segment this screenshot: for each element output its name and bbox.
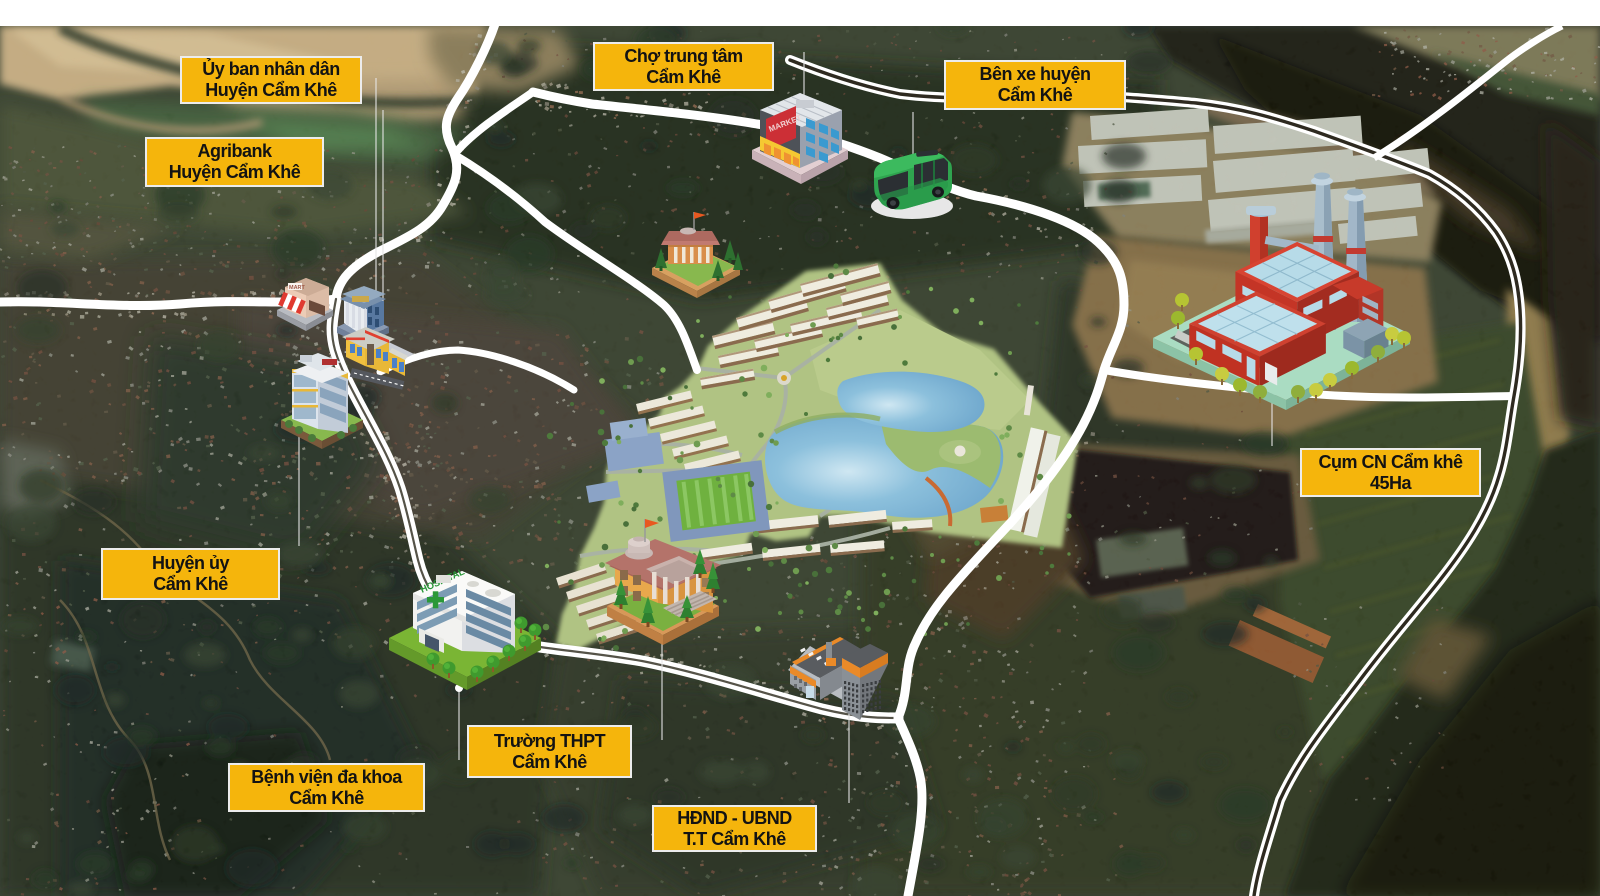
svg-text:MART: MART	[289, 285, 306, 291]
